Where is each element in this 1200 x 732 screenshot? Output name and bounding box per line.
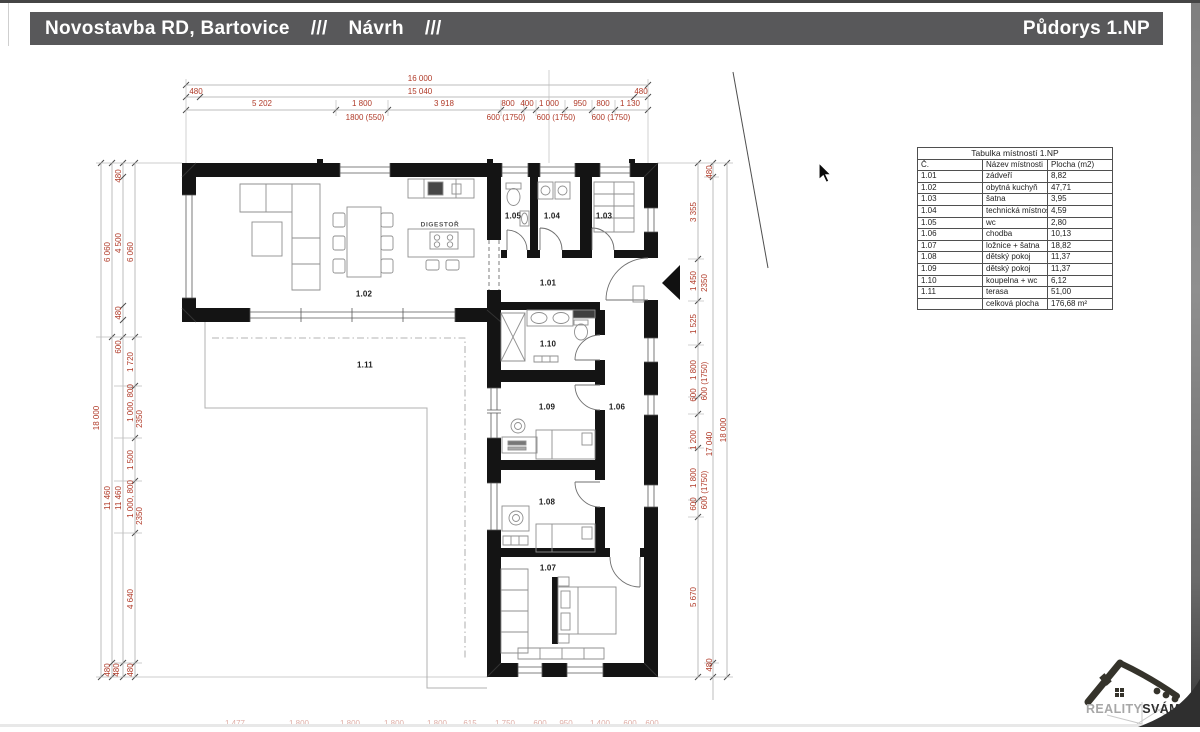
toilet (507, 189, 520, 206)
table-cell: Plocha (m2) (1048, 159, 1113, 171)
table-cell: 51,00 (1048, 287, 1113, 299)
table-cell: 1.07 (918, 240, 983, 252)
dimension-label: 480 (706, 165, 714, 178)
table-cell: technická místnost (983, 205, 1048, 217)
double-bed (558, 587, 616, 634)
table-cell: zádveří (983, 171, 1048, 183)
room-table: Tabulka místností 1.NPČ.Název místnostiP… (917, 147, 1113, 310)
dimension-label: 1 130 (620, 100, 640, 108)
toilet (575, 324, 588, 340)
table-cell: ložnice + šatna (983, 240, 1048, 252)
nightstand (558, 577, 569, 586)
dimension-label: 480 (127, 663, 135, 676)
chair (509, 511, 523, 525)
slashes-icon: /// (425, 18, 442, 40)
terrace-outline (205, 322, 487, 688)
title-bar: Novostavba RD, Bartovice /// Návrh /// P… (30, 12, 1163, 45)
table-cell: 1.11 (918, 287, 983, 299)
pillow (561, 591, 570, 608)
entrance-door (606, 258, 648, 300)
table-cell: 1.02 (918, 182, 983, 194)
dryer (555, 182, 570, 199)
walls (182, 159, 658, 677)
sink (553, 313, 569, 324)
dimension-label: 480 (189, 88, 202, 96)
table-cell: 2,80 (1048, 217, 1113, 229)
dimension-label: 5 202 (252, 100, 272, 108)
dimension-label: 5 670 (690, 587, 698, 607)
slashes-icon: /// (311, 18, 328, 40)
low-cabinet (518, 648, 604, 659)
room-number-label: 1.10 (540, 340, 556, 349)
room-number-label: 1.02 (356, 290, 372, 299)
dimension-label: 11 460 (104, 486, 112, 510)
drawing-title: Půdorys 1.NP (1023, 18, 1150, 40)
window-right-edge (1191, 0, 1200, 727)
table-cell: 1.09 (918, 263, 983, 275)
room-number-label: 1.09 (539, 403, 555, 412)
room-number-label: 1.07 (540, 564, 556, 573)
dimension-label: 1 000 (539, 100, 559, 108)
dimension-label: 3 355 (690, 202, 698, 222)
dimension-label: 11 460 (115, 486, 123, 510)
bed-headboard-wall (552, 577, 558, 644)
table-cell: 3,95 (1048, 194, 1113, 206)
table-cell: Název místnosti (983, 159, 1048, 171)
dimension-label: 480 (706, 658, 714, 671)
dimension-label: 1 450 (690, 271, 698, 291)
page: { "header": { "project_title": "Novostav… (0, 0, 1200, 727)
dimension-label: 1800 (550) (346, 114, 385, 122)
bed (536, 430, 595, 459)
dimension-label: 600 (1750) (592, 114, 631, 122)
window-top-edge (0, 0, 1200, 3)
room-number-label: 1.04 (544, 212, 560, 221)
dimension-label: 3 918 (434, 100, 454, 108)
dimension-label: 800 (596, 100, 609, 108)
wardrobe (501, 569, 528, 653)
table-cell: wc (983, 217, 1048, 229)
table-cell: 11,37 (1048, 263, 1113, 275)
coffee-table (252, 222, 282, 256)
shower (501, 313, 525, 361)
dimension-label: 4 640 (127, 589, 135, 609)
dimension-label: 400 (520, 100, 533, 108)
table-cell: 1.03 (918, 194, 983, 206)
property-boundary-line (733, 72, 768, 268)
dimension-label: 800 (501, 100, 514, 108)
dimension-label: 2350 (701, 274, 709, 292)
table-cell: chodba (983, 229, 1048, 241)
dimension-label: 1 800 (690, 468, 698, 488)
project-title: Novostavba RD, Bartovice (45, 18, 290, 40)
dimension-label: 600 (690, 497, 698, 510)
dimension-label: 480 (115, 306, 123, 319)
kitchen-island (408, 229, 474, 257)
table-cell: Č. (918, 159, 983, 171)
dimension-label: 1 525 (690, 314, 698, 334)
dimension-label: 1 720 (127, 352, 135, 372)
dimension-label: 1 800 (352, 100, 372, 108)
table-cell: 4,59 (1048, 205, 1113, 217)
dimension-label: 18 000 (93, 406, 101, 430)
dimension-label: 1 000, 800 (127, 384, 135, 422)
mouse-cursor (818, 162, 834, 184)
room-number-label: 1.05 (505, 212, 521, 221)
table-cell: 1.05 (918, 217, 983, 229)
table-cell: šatna (983, 194, 1048, 206)
table-cell: 1.04 (918, 205, 983, 217)
table-cell: terasa (983, 287, 1048, 299)
table-cell (918, 298, 983, 310)
dimension-label: 480 (104, 663, 112, 676)
table-cell: obytná kuchyň (983, 182, 1048, 194)
dimension-label: 480 (113, 663, 121, 676)
table-title: Tabulka místností 1.NP (918, 148, 1113, 160)
room-number-label: 1.01 (540, 279, 556, 288)
sink (531, 313, 547, 324)
table-cell: 1.01 (918, 171, 983, 183)
dimension-label: 600 (115, 340, 123, 353)
dimension-label: 4 500 (115, 233, 123, 253)
room-number-label: 1.08 (539, 498, 555, 507)
wardrobe (594, 182, 634, 232)
washer (538, 182, 553, 199)
table-cell: 1.08 (918, 252, 983, 264)
table-cell: 1.06 (918, 229, 983, 241)
dimension-label: 6 060 (104, 242, 112, 262)
bed (536, 524, 595, 552)
phase-title: Návrh (349, 18, 404, 40)
table-cell: koupelna + wc (983, 275, 1048, 287)
table-cell: 8,82 (1048, 171, 1113, 183)
dimension-label: 16 000 (408, 75, 432, 83)
table-cell: 18,82 (1048, 240, 1113, 252)
dimension-label: 6 060 (127, 242, 135, 262)
dimension-label: 600 (1750) (701, 471, 709, 510)
room-table-grid: Tabulka místností 1.NPČ.Název místnostiP… (917, 147, 1113, 310)
dimension-label: 1 800 (690, 360, 698, 380)
table-cell: dětský pokoj (983, 252, 1048, 264)
dining-table (347, 207, 381, 277)
dimension-label: 950 (573, 100, 586, 108)
window-corner (1138, 679, 1200, 727)
table-cell: 47,71 (1048, 182, 1113, 194)
table-cell: 6,12 (1048, 275, 1113, 287)
pillow (582, 527, 592, 539)
table-cell: 11,37 (1048, 252, 1113, 264)
kitchen-sink (428, 182, 443, 195)
dimension-label: 2350 (136, 410, 144, 428)
table-cell: 10,13 (1048, 229, 1113, 241)
desk (502, 506, 529, 531)
bath-counter (527, 310, 573, 326)
pillow (561, 613, 570, 630)
room-number-label: 1.03 (596, 212, 612, 221)
dimension-label: 1 200 (690, 430, 698, 450)
dimension-label: 15 040 (408, 88, 432, 96)
open-passage (489, 240, 499, 290)
table-cell: 1.10 (918, 275, 983, 287)
entrance-arrow-icon (662, 265, 680, 300)
dimension-label: 600 (1750) (487, 114, 526, 122)
dimension-label: 600 (1750) (701, 362, 709, 401)
digestor-label: DIGESTOŘ (421, 222, 460, 229)
table-cell: 176,68 m² (1048, 298, 1113, 310)
table-cell: dětský pokoj (983, 263, 1048, 275)
dimension-label: 1 000, 800 (127, 480, 135, 518)
dimension-label: 480 (634, 88, 647, 96)
dimension-label: 2350 (136, 507, 144, 525)
dimension-label: 600 (690, 388, 698, 401)
room-number-label: 1.06 (609, 403, 625, 412)
cooktop (430, 232, 458, 249)
room-number-label: 1.11 (357, 361, 373, 370)
dimension-label: 600 (1750) (537, 114, 576, 122)
dimension-label: 17 040 (706, 432, 714, 456)
dimension-label: 18 000 (720, 418, 728, 442)
pillow (582, 433, 592, 445)
floor-plan (0, 0, 1200, 727)
dimension-label: 1 500 (127, 450, 135, 470)
dimension-label: 480 (115, 169, 123, 182)
table-cell: celková plocha (983, 298, 1048, 310)
nightstand (558, 634, 569, 643)
chair (511, 419, 525, 433)
